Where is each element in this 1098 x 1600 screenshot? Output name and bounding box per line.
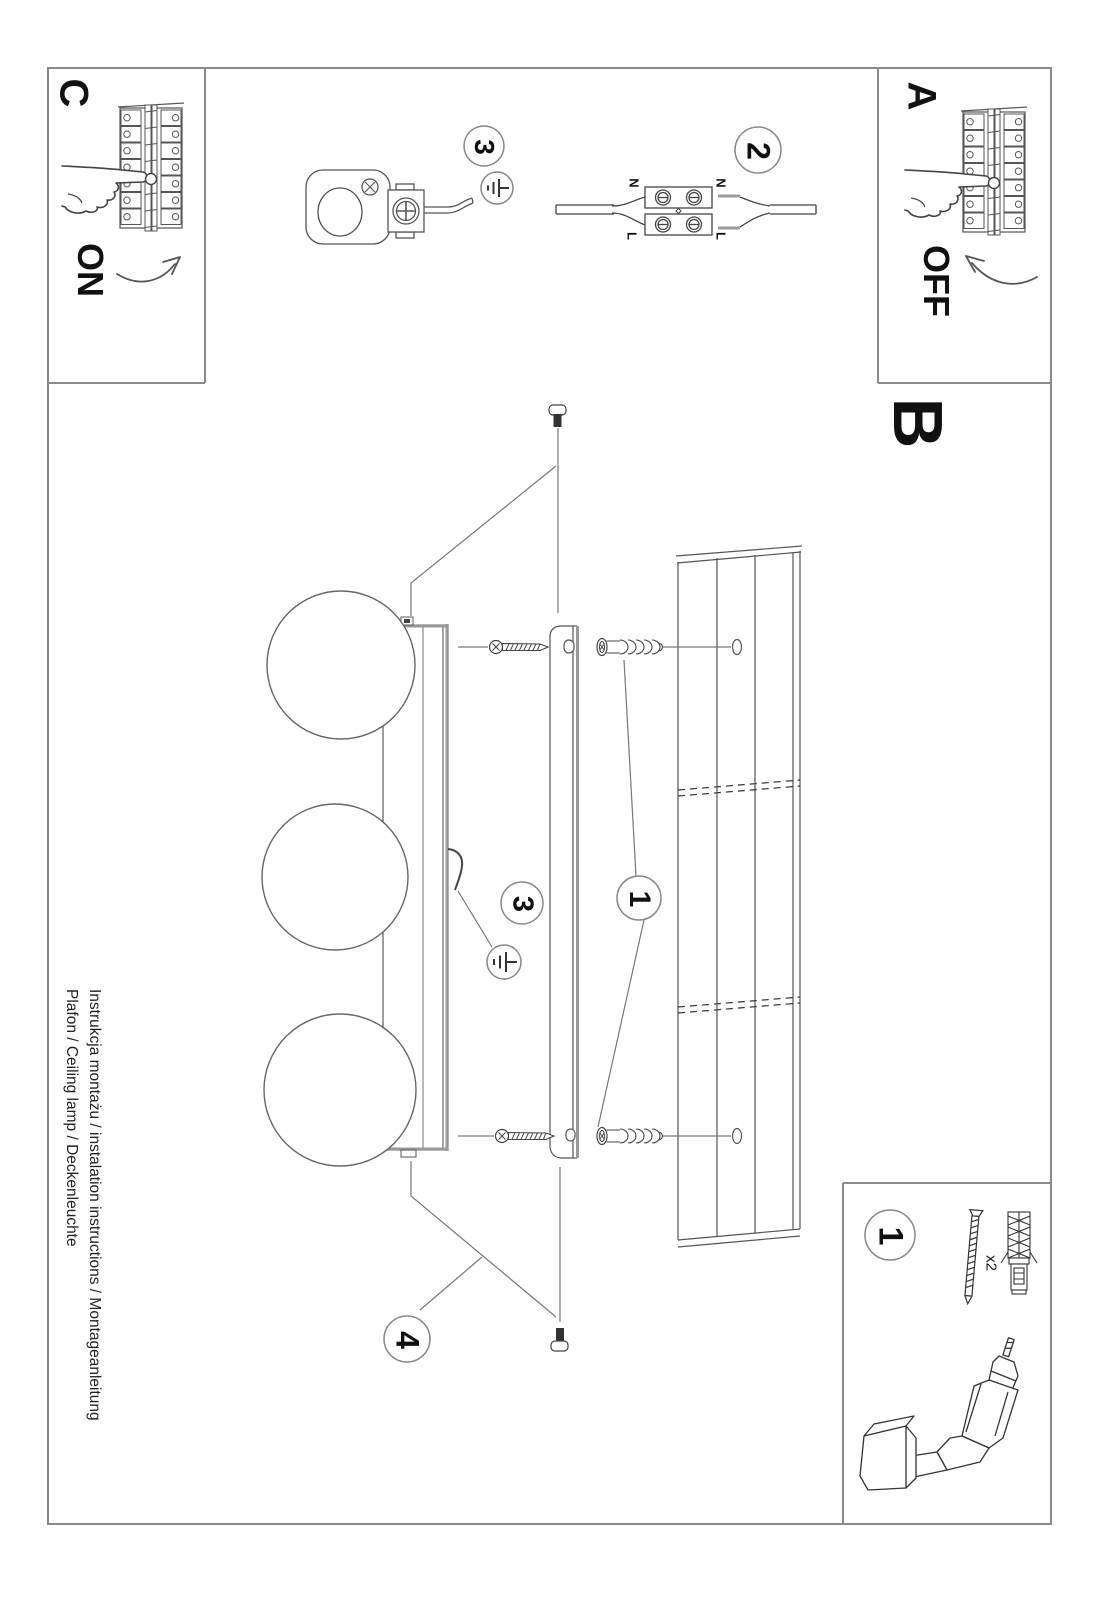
instruction-line-1: Instrukcja montażu / instalation instruc… [83,989,106,1421]
quantity-label: x2 [983,1255,1000,1271]
instruction-line-2: Plafon / Ceiling lamp / Deckenleuchte [60,989,83,1421]
callout-1-anchors: 1 [622,891,656,908]
terminal-label-n-right: N [714,178,729,187]
callout-3-earth: 3 [506,896,539,912]
terminal-label-n-left: N [627,178,642,187]
section-b-label: B [878,398,958,449]
off-label: OFF [915,245,957,317]
callout-2-wiring: 2 [740,142,777,160]
instruction-sheet: C ON A OFF B 3 2 1 3 4 1 x2 N L N L Inst… [0,0,1098,1600]
product-title-block: Instrukcja montażu / instalation instruc… [60,989,106,1421]
terminal-label-l-left: L [625,232,640,240]
callout-1-toolbox: 1 [871,1227,910,1246]
on-label: ON [69,243,111,297]
callout-4-bolts: 4 [389,1331,426,1349]
line-art [0,0,1098,1600]
callout-3-socket: 3 [468,139,500,155]
glass-globes [262,591,416,1166]
section-c-label: C [51,79,96,108]
section-a-label: A [899,82,944,111]
terminal-label-l-right: L [714,232,729,240]
